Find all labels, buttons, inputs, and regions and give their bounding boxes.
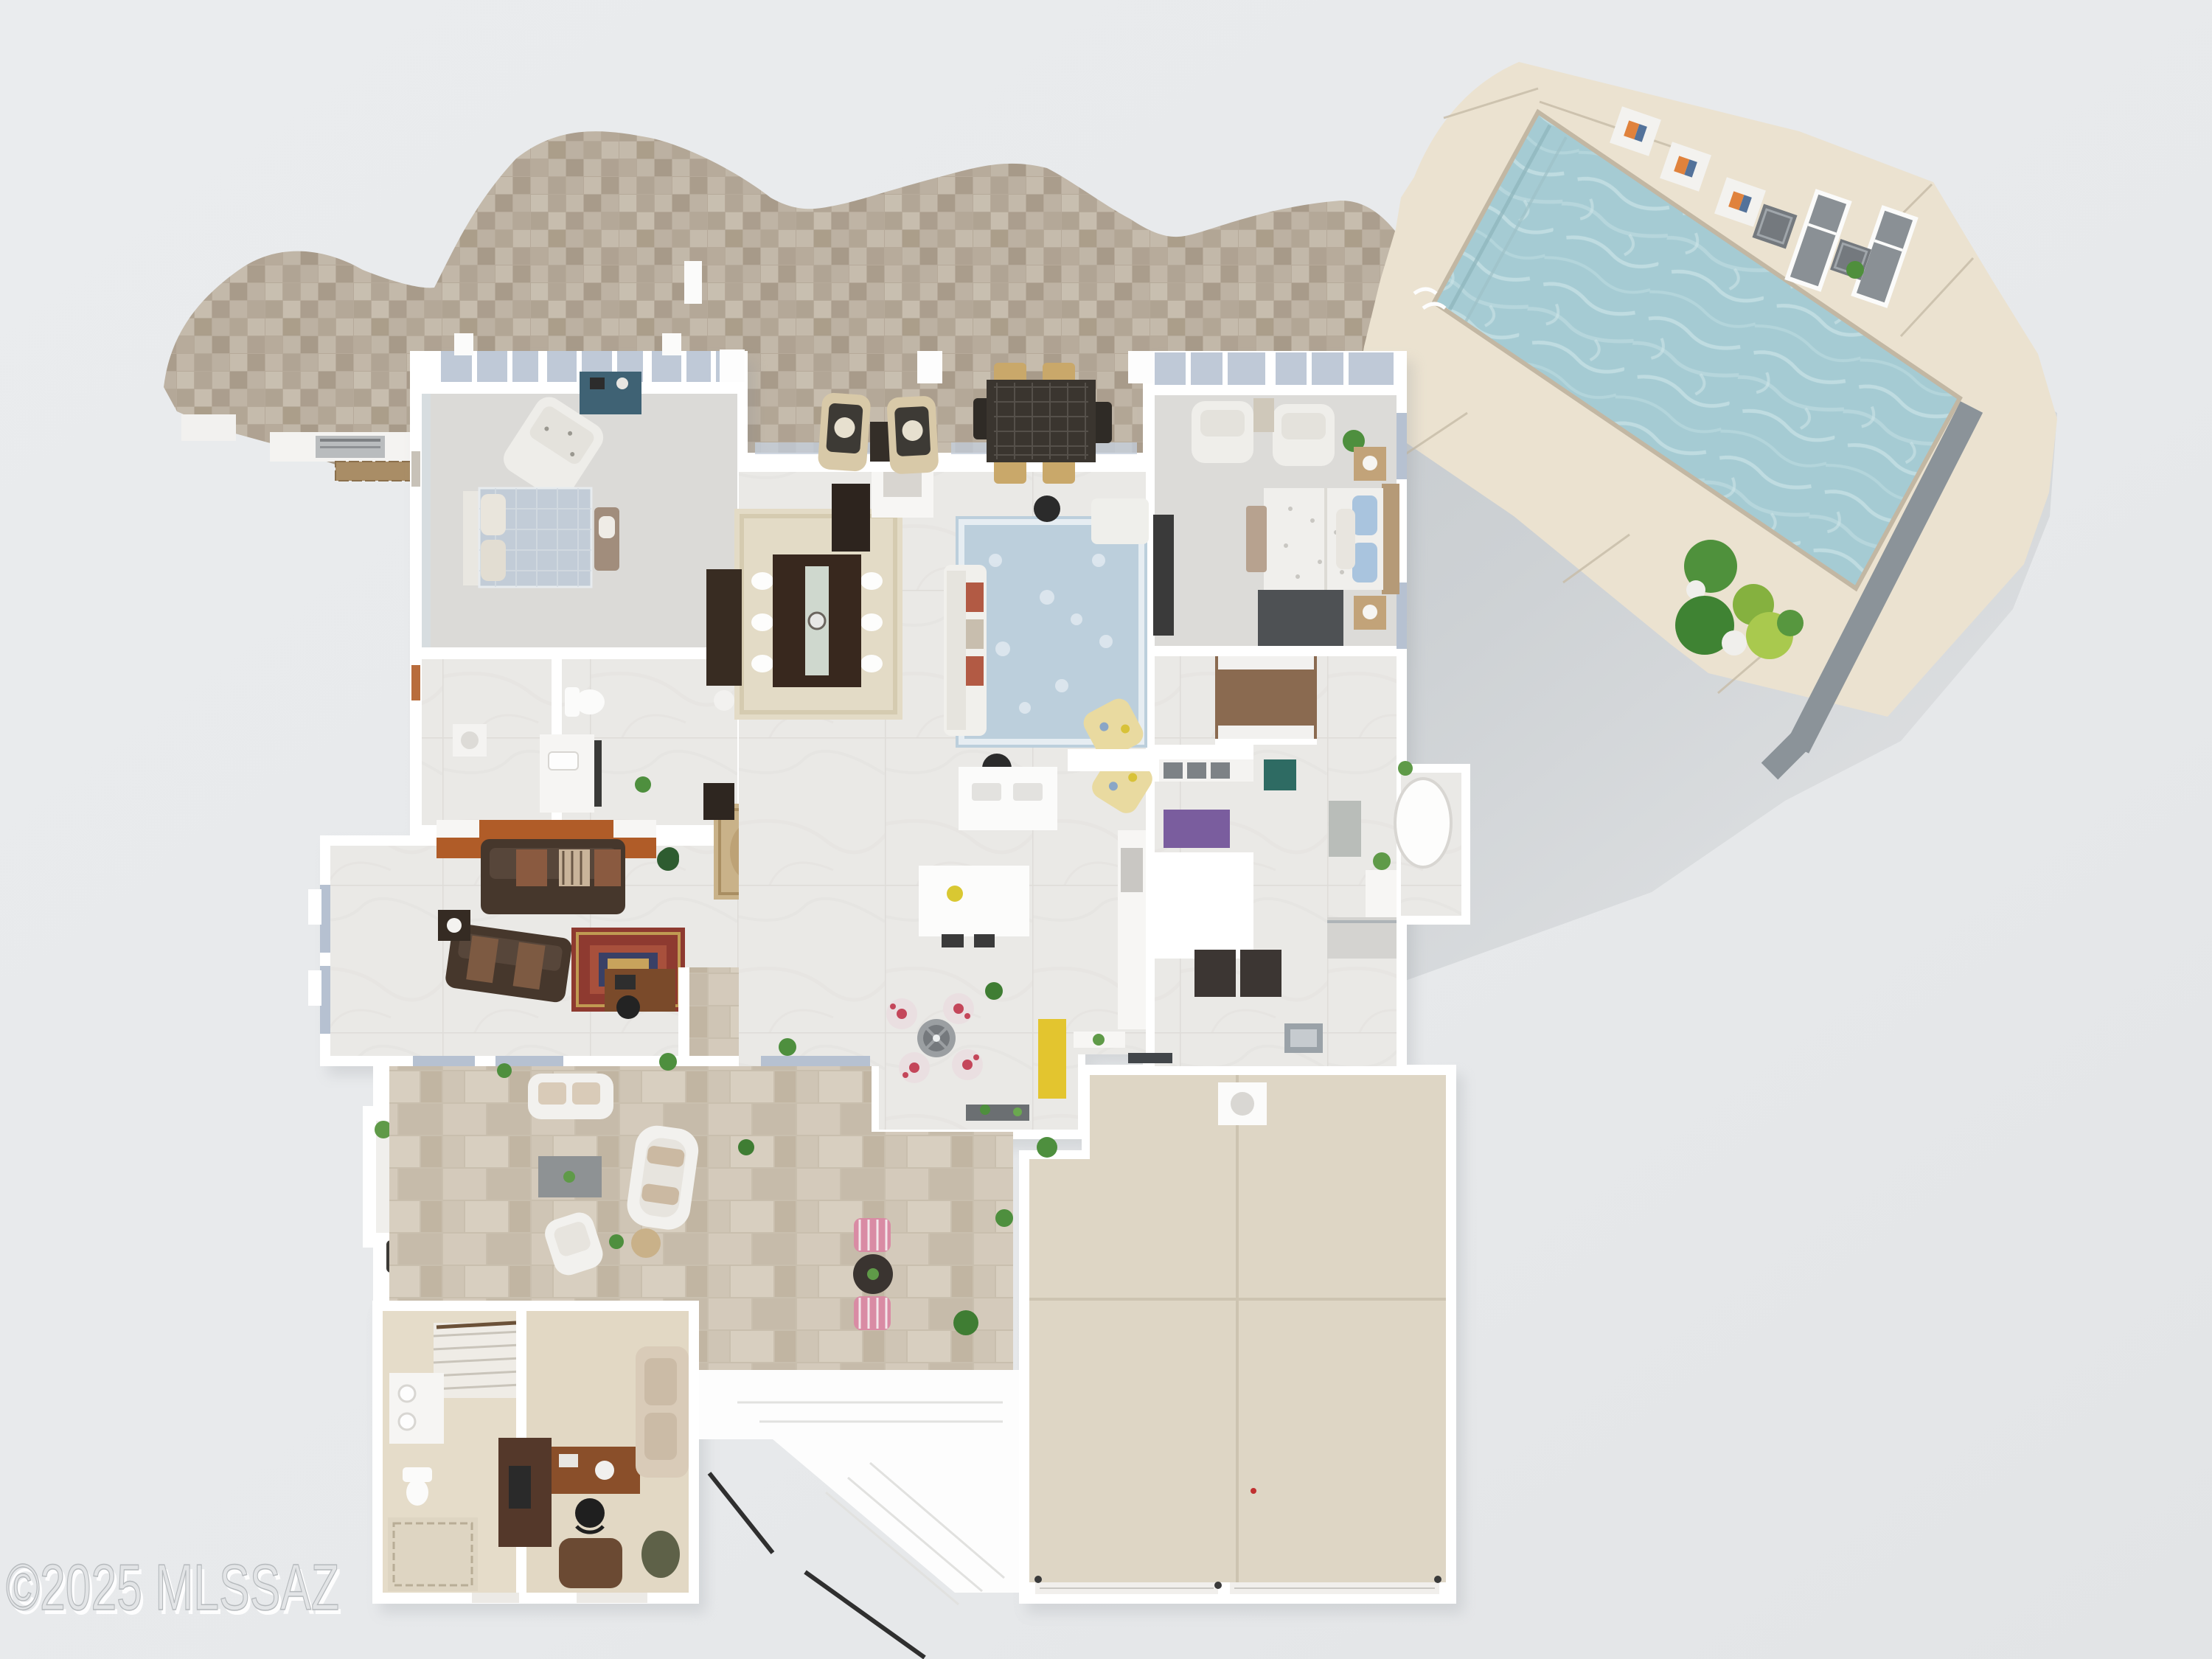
svg-text:©2025 MLSSAZ: ©2025 MLSSAZ <box>6 1551 339 1624</box>
